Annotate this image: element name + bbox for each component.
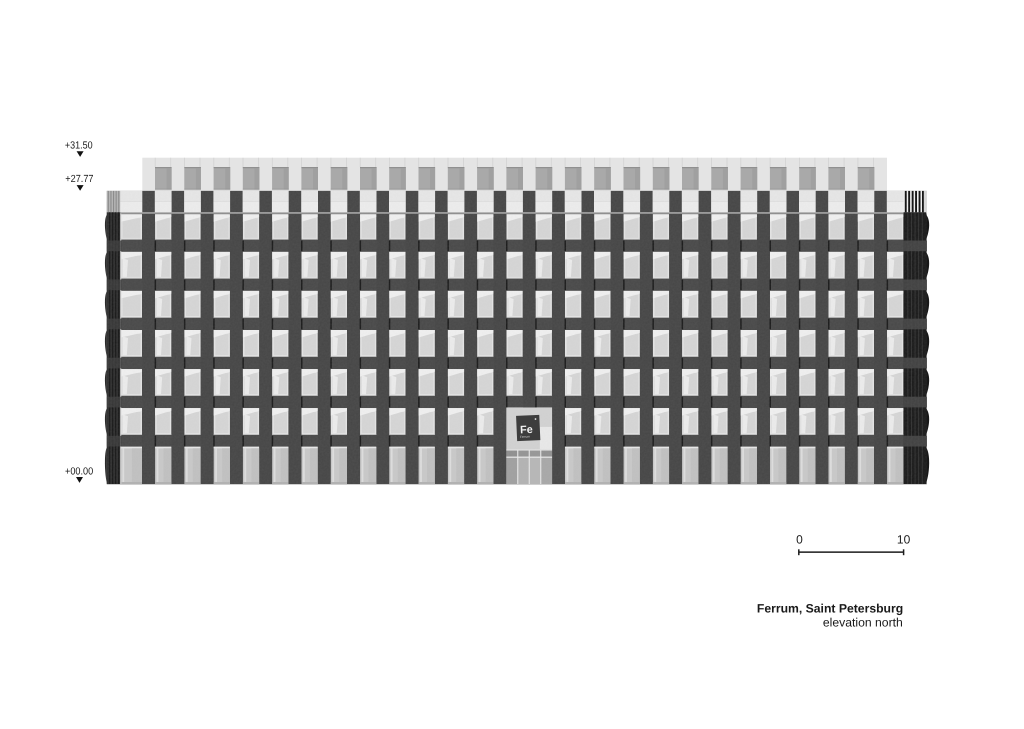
svg-text:0: 0 <box>796 532 803 546</box>
svg-text:10: 10 <box>897 532 911 546</box>
svg-text:+27.77: +27.77 <box>65 174 93 185</box>
svg-text:+31.50: +31.50 <box>65 140 93 151</box>
svg-text:+00.00: +00.00 <box>65 467 93 478</box>
svg-text:elevation north: elevation north <box>823 616 903 630</box>
svg-text:Ferrum, Saint Petersburg: Ferrum, Saint Petersburg <box>757 602 903 616</box>
svg-text:Ferrum: Ferrum <box>520 435 531 439</box>
